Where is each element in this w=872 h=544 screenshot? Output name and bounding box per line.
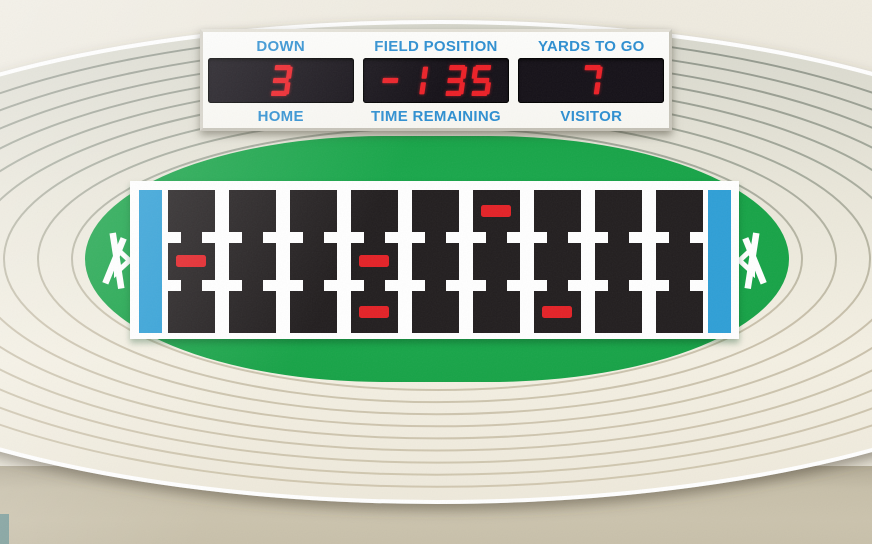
- yard-marker-notch: [568, 232, 581, 243]
- yard-marker-notch: [446, 280, 459, 291]
- endzone-right: [708, 190, 731, 333]
- yard-marker-notch: [568, 280, 581, 291]
- yard-marker-notch: [656, 232, 669, 243]
- yard-marker-notch: [290, 280, 303, 291]
- yard-marker-notch: [534, 232, 547, 243]
- field-column: [595, 190, 643, 333]
- yard-marker-notch: [168, 280, 181, 291]
- yard-marker-notch: [202, 232, 215, 243]
- scoreboard-column-yards-to-go: YARDS TO GO VISITOR: [514, 32, 669, 128]
- yard-marker-notch: [534, 280, 547, 291]
- scoreboard-column-down: DOWN HOME: [203, 32, 358, 128]
- yard-marker-notch: [263, 232, 276, 243]
- player-blip: [176, 255, 206, 268]
- led-field-panel: [130, 181, 739, 339]
- yards-to-go-led-display: [518, 58, 664, 103]
- field-position-led-display: [363, 58, 509, 103]
- yard-marker-notch: [351, 232, 364, 243]
- field-column: [229, 190, 277, 333]
- yard-marker-notch: [473, 232, 486, 243]
- down-led-display: [208, 58, 354, 103]
- electronic-football-game-screen: DOWN HOME FIELD POSITION TIME REMAINING …: [0, 0, 872, 544]
- yard-marker-notch: [263, 280, 276, 291]
- yard-marker-notch: [446, 232, 459, 243]
- yard-marker-notch: [629, 280, 642, 291]
- home-label: HOME: [258, 103, 304, 128]
- scoreboard-column-field-position: FIELD POSITION TIME REMAINING: [358, 32, 513, 128]
- yard-marker-notch: [595, 280, 608, 291]
- yard-marker-notch: [385, 280, 398, 291]
- field-column: [412, 190, 460, 333]
- yard-marker-notch: [473, 280, 486, 291]
- yards-to-go-label: YARDS TO GO: [538, 32, 645, 58]
- yard-marker-notch: [202, 280, 215, 291]
- yard-marker-notch: [229, 232, 242, 243]
- visitor-label: VISITOR: [560, 103, 622, 128]
- player-blip: [542, 306, 572, 319]
- down-label: DOWN: [256, 32, 305, 58]
- yard-marker-notch: [351, 280, 364, 291]
- yard-marker-notch: [595, 232, 608, 243]
- yard-marker-notch: [290, 232, 303, 243]
- yard-marker-notch: [507, 280, 520, 291]
- player-blip: [359, 255, 389, 268]
- yard-marker-notch: [690, 280, 703, 291]
- scoreboard-panel: DOWN HOME FIELD POSITION TIME REMAINING …: [200, 29, 672, 131]
- yard-marker-notch: [168, 232, 181, 243]
- yard-marker-notch: [412, 280, 425, 291]
- yard-marker-notch: [690, 232, 703, 243]
- yard-marker-notch: [324, 280, 337, 291]
- yard-marker-notch: [507, 232, 520, 243]
- yard-marker-notch: [229, 280, 242, 291]
- endzone-left: [139, 190, 162, 333]
- yard-marker-notch: [412, 232, 425, 243]
- field-column: [290, 190, 338, 333]
- yard-marker-notch: [385, 232, 398, 243]
- field-position-label: FIELD POSITION: [374, 32, 497, 58]
- player-blip: [359, 306, 389, 319]
- yard-marker-notch: [629, 232, 642, 243]
- player-blip: [481, 205, 511, 218]
- field-column: [656, 190, 704, 333]
- yard-marker-notch: [324, 232, 337, 243]
- yard-marker-notch: [656, 280, 669, 291]
- time-remaining-label: TIME REMAINING: [371, 103, 501, 128]
